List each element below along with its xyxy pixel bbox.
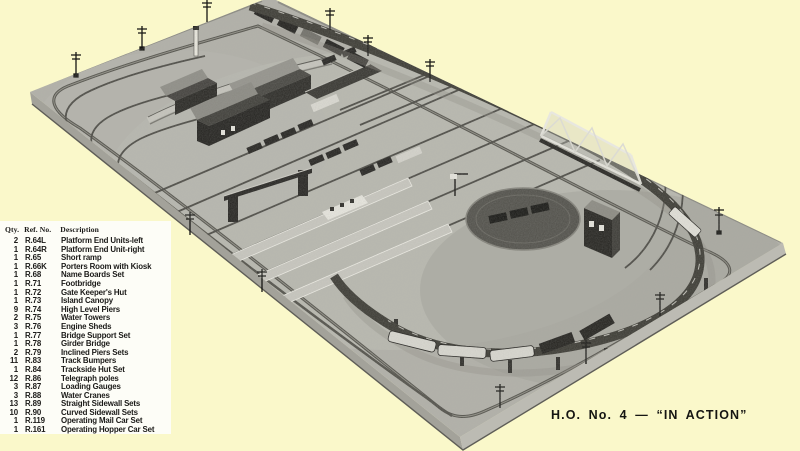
part-description: Operating Hopper Car Set bbox=[61, 426, 154, 435]
header-ref: Ref. No. bbox=[24, 225, 51, 234]
parts-table-body: 2 R.64L Platform End Units-left 1 R.64R … bbox=[5, 237, 171, 435]
parts-list-header: Qty.Ref. No.Description bbox=[5, 225, 171, 234]
header-qty: Qty. bbox=[5, 225, 19, 234]
table-row: 1 R.161 Operating Hopper Car Set bbox=[5, 426, 171, 435]
part-qty: 1 bbox=[5, 426, 18, 435]
photo-caption: H.O. No. 4 — “IN ACTION” bbox=[551, 408, 748, 422]
telegraph-pole bbox=[202, 0, 212, 22]
parts-list-panel: Qty.Ref. No.Description 2 R.64L Platform… bbox=[0, 221, 171, 434]
header-description: Description bbox=[60, 225, 99, 234]
part-ref: R.161 bbox=[25, 426, 60, 435]
catalog-page: Qty.Ref. No.Description 2 R.64L Platform… bbox=[0, 0, 800, 451]
